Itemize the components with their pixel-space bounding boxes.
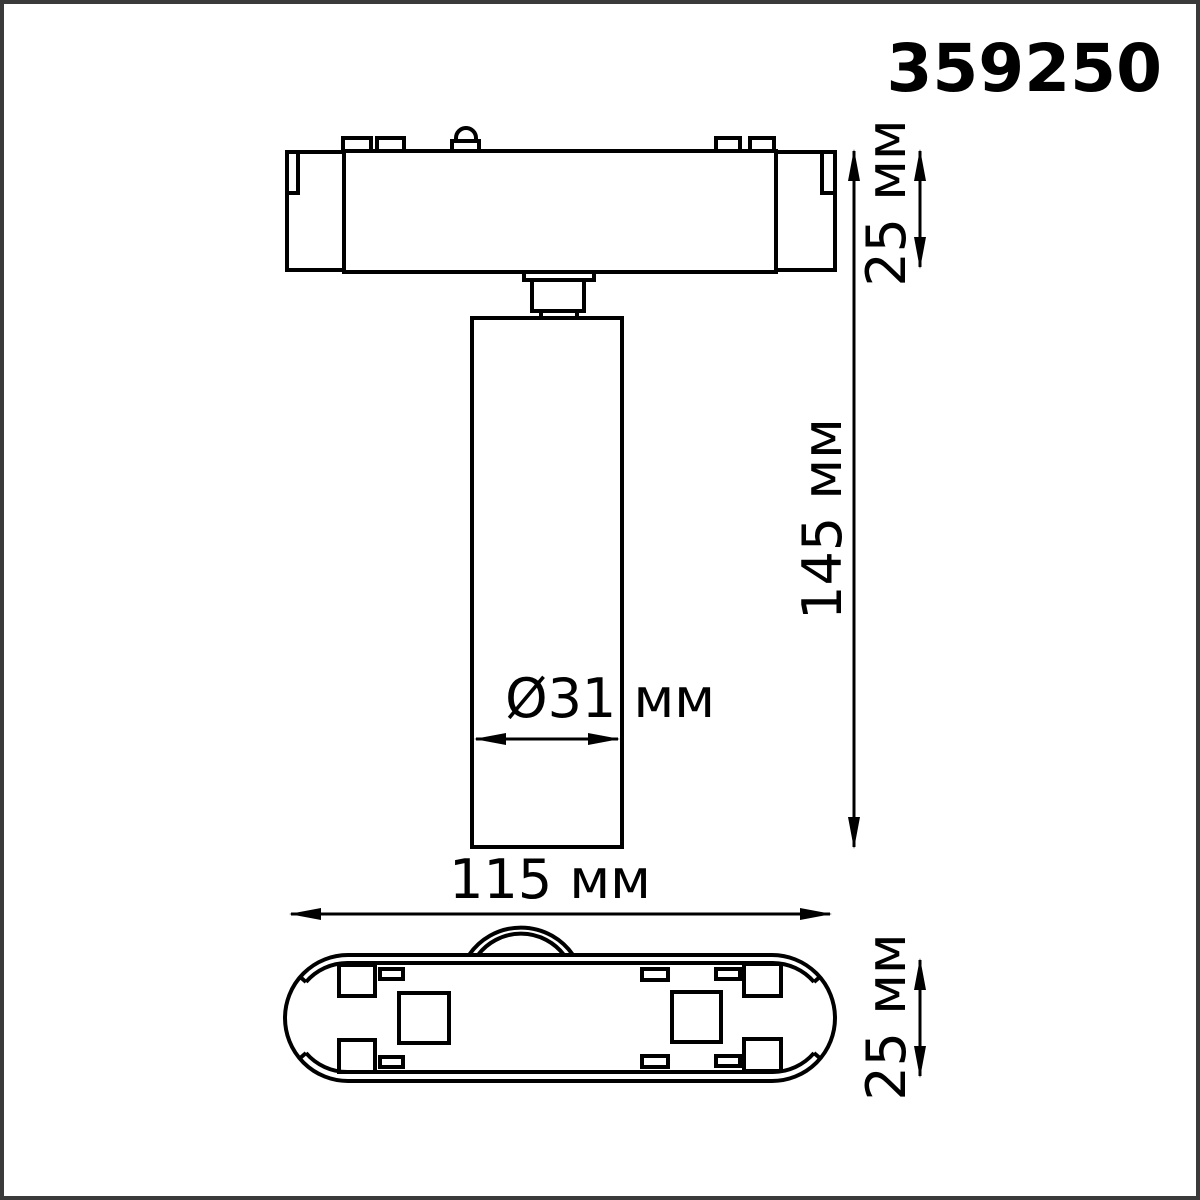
part-number: 359250 [886, 36, 1162, 102]
lamp-cylinder [472, 318, 622, 847]
adapter-right-cap [776, 152, 835, 270]
adapter-body [344, 151, 776, 272]
inner-step [814, 1053, 821, 1059]
stem-neck [532, 280, 584, 311]
dim-diameter-arrow [474, 733, 620, 745]
pad-slot [716, 969, 740, 979]
dim-diameter-label: Ø31 мм [505, 672, 715, 726]
dome-button-base [452, 141, 479, 151]
pad-slot [380, 1057, 403, 1067]
inner-step [299, 1053, 306, 1059]
inner-step [814, 976, 821, 982]
adapter-left-cap [287, 152, 344, 270]
dim-total-height-label: 145 мм [796, 418, 850, 620]
contact-tab [716, 138, 740, 151]
pad-square [339, 965, 375, 996]
pad-slot [642, 1056, 668, 1067]
adapter-left-cap-notch [288, 153, 298, 193]
pad-slot [380, 969, 403, 979]
technical-drawing [4, 4, 1196, 1196]
pad-square [339, 1040, 375, 1072]
pad-slot [716, 1056, 740, 1066]
contact-tab [377, 138, 404, 151]
dim-length-label: 115 мм [449, 853, 651, 907]
inner-step [299, 976, 306, 982]
pad-square [744, 964, 781, 996]
magnet-square [399, 993, 449, 1043]
magnet-square [672, 992, 721, 1042]
bottom-view [285, 928, 835, 1081]
contact-tab [750, 138, 774, 151]
contact-tab [343, 138, 371, 151]
pad-slot [642, 969, 668, 980]
adapter-right-cap-notch [822, 153, 834, 193]
drawing-canvas: 359250 25 мм 145 мм Ø31 мм 115 мм 25 мм [0, 0, 1200, 1200]
dim-track-width-label: 25 мм [860, 933, 914, 1100]
bottom-outline-outer [285, 955, 835, 1081]
dim-track-height-label: 25 мм [860, 119, 914, 286]
pad-square [744, 1039, 781, 1071]
